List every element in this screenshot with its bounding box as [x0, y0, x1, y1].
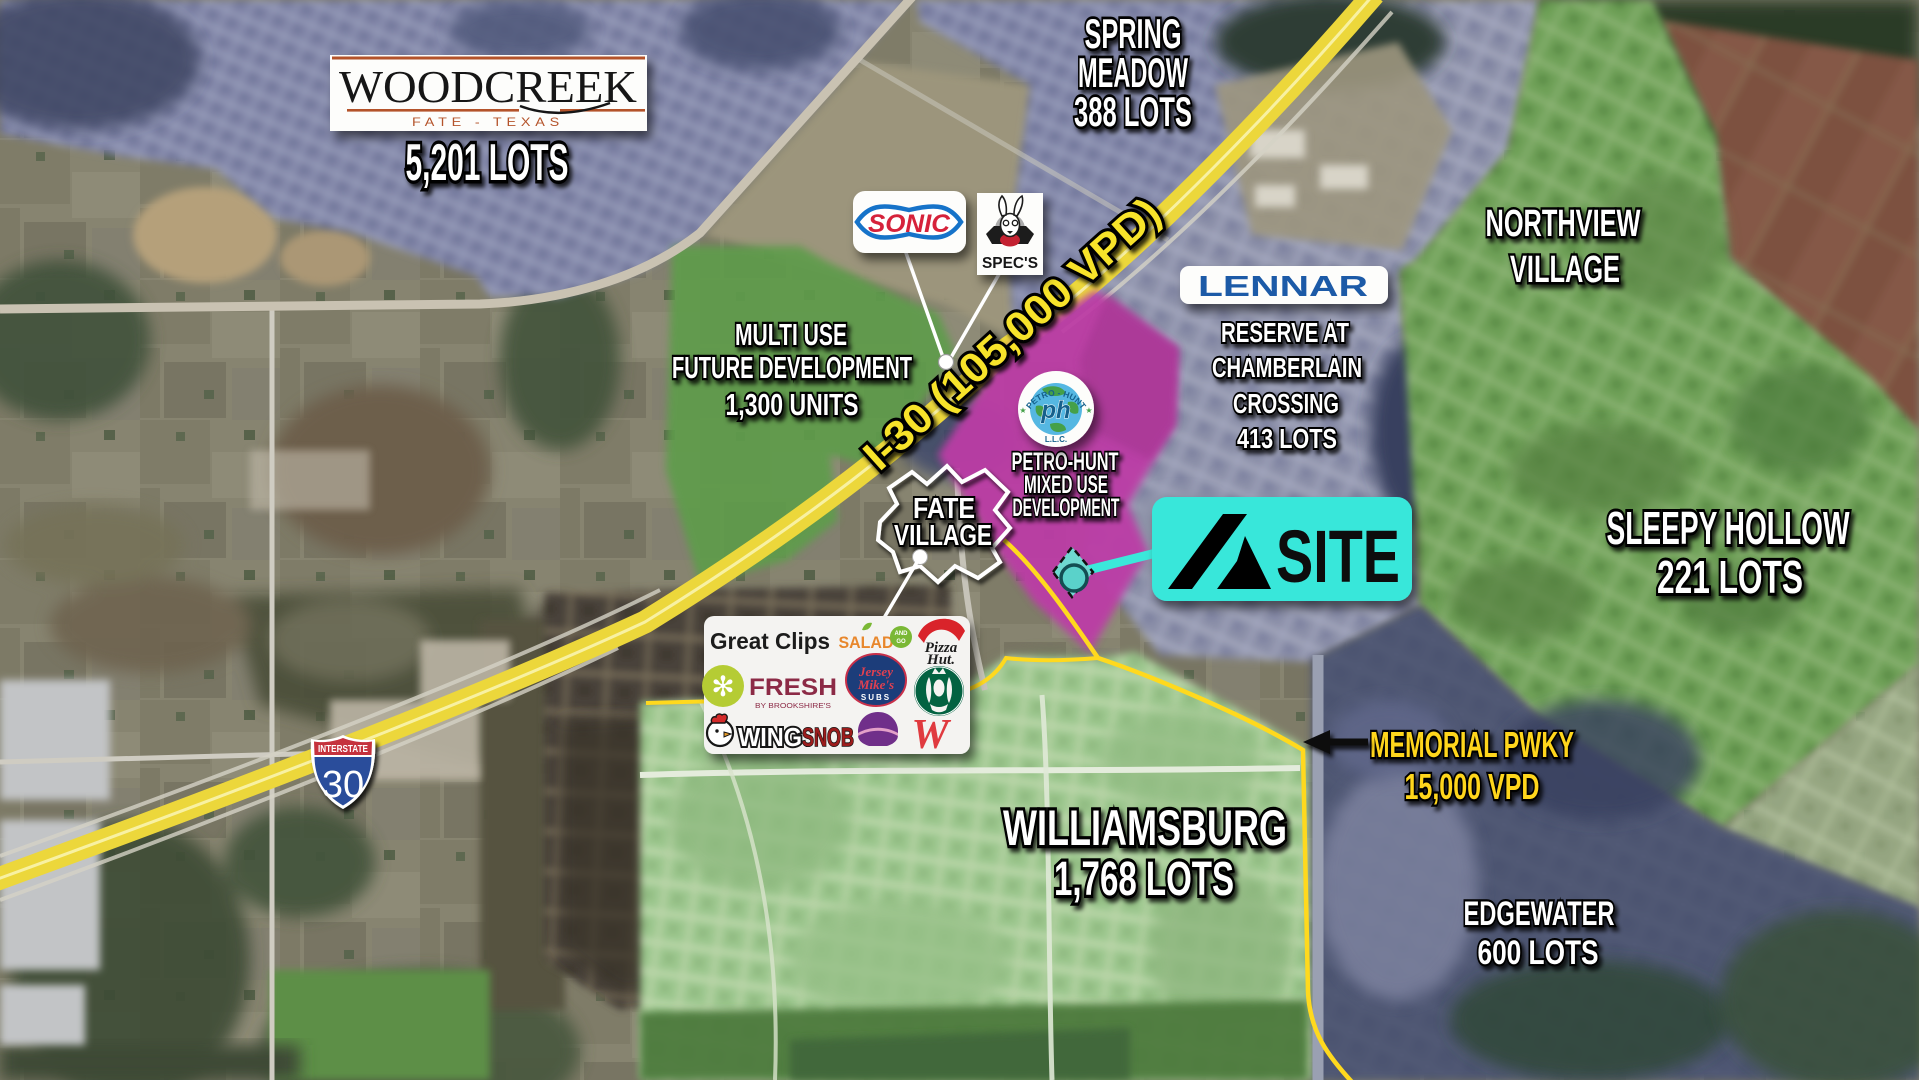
- svg-text:FUTURE DEVELOPMENT: FUTURE DEVELOPMENT: [672, 350, 912, 385]
- svg-text:15,000 VPD: 15,000 VPD: [1405, 766, 1540, 807]
- svg-text:DEVELOPMENT: DEVELOPMENT: [1013, 494, 1120, 522]
- svg-text:CROSSING: CROSSING: [1233, 388, 1339, 419]
- svg-text:L.L.C.: L.L.C.: [1045, 435, 1067, 444]
- svg-text:WOODCREEK: WOODCREEK: [339, 61, 637, 112]
- svg-text:FATE - TEXAS: FATE - TEXAS: [412, 115, 564, 129]
- svg-text:✻: ✻: [711, 671, 734, 702]
- svg-text:NORTHVIEW: NORTHVIEW: [1486, 203, 1641, 245]
- svg-text:ph: ph: [1040, 397, 1070, 424]
- svg-text:Hut.: Hut.: [926, 652, 955, 668]
- svg-text:W: W: [911, 712, 951, 758]
- svg-text:RESERVE AT: RESERVE AT: [1221, 317, 1349, 348]
- svg-text:★: ★: [1019, 406, 1026, 415]
- svg-text:AND: AND: [895, 631, 909, 637]
- svg-text:WILLIAMSBURG: WILLIAMSBURG: [1003, 800, 1287, 856]
- svg-text:600 LOTS: 600 LOTS: [1478, 934, 1599, 972]
- svg-text:413 LOTS: 413 LOTS: [1237, 423, 1337, 454]
- svg-text:1,300 UNITS: 1,300 UNITS: [726, 387, 859, 422]
- svg-text:SALAD: SALAD: [839, 633, 894, 652]
- svg-text:SUBS: SUBS: [861, 693, 891, 702]
- svg-text:FRESH: FRESH: [749, 674, 837, 701]
- svg-text:SPEC'S: SPEC'S: [982, 255, 1038, 272]
- svg-text:CHAMBERLAIN: CHAMBERLAIN: [1212, 352, 1362, 383]
- svg-text:1,768 LOTS: 1,768 LOTS: [1054, 853, 1234, 906]
- svg-text:WING: WING: [738, 722, 802, 752]
- svg-text:Great Clips: Great Clips: [710, 628, 830, 654]
- svg-text:VILLAGE: VILLAGE: [894, 520, 992, 552]
- svg-text:BY BROOKSHIRE'S: BY BROOKSHIRE'S: [755, 703, 831, 710]
- svg-text:SLEEPY HOLLOW: SLEEPY HOLLOW: [1607, 502, 1850, 554]
- svg-text:SNOB: SNOB: [802, 722, 854, 752]
- svg-text:VILLAGE: VILLAGE: [1510, 249, 1620, 291]
- svg-text:GO: GO: [896, 639, 906, 645]
- svg-text:EDGEWATER: EDGEWATER: [1464, 895, 1615, 933]
- svg-text:30: 30: [322, 764, 364, 806]
- svg-text:SONIC: SONIC: [868, 210, 951, 238]
- svg-text:★: ★: [1085, 406, 1092, 415]
- svg-text:5,201 LOTS: 5,201 LOTS: [406, 134, 569, 192]
- svg-text:MEMORIAL PWKY: MEMORIAL PWKY: [1370, 724, 1574, 765]
- svg-text:MULTI USE: MULTI USE: [735, 317, 847, 352]
- svg-text:INTERSTATE: INTERSTATE: [318, 743, 368, 755]
- svg-text:SITE: SITE: [1276, 515, 1400, 598]
- svg-text:Mike's: Mike's: [857, 677, 894, 692]
- svg-text:LENNAR: LENNAR: [1198, 271, 1368, 303]
- svg-text:221 LOTS: 221 LOTS: [1657, 551, 1803, 603]
- svg-text:388 LOTS: 388 LOTS: [1074, 88, 1192, 135]
